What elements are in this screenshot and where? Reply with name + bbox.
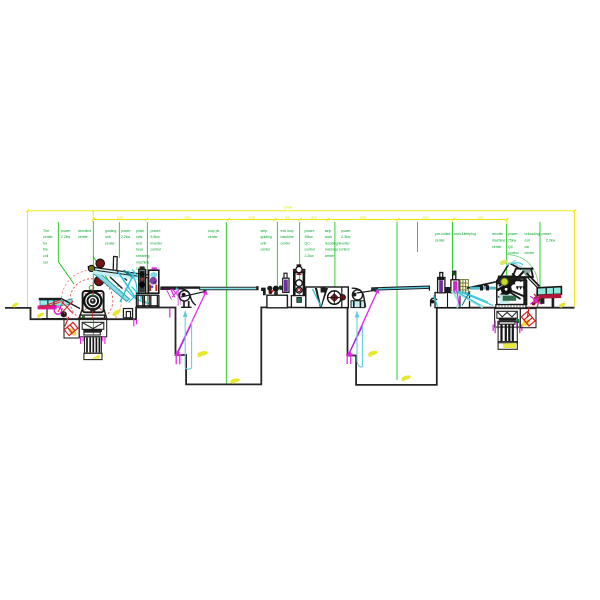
svg-text:loop pit: loop pit (208, 229, 219, 233)
svg-text:car: car (525, 245, 531, 249)
svg-text:recoiling/leveller: recoiling/leveller (325, 241, 351, 245)
svg-text:machine: machine (492, 239, 505, 243)
svg-text:control: control (508, 251, 519, 255)
svg-text:shearing: shearing (136, 254, 149, 258)
svg-text:power:: power: (151, 229, 162, 233)
svg-text:2.2kw: 2.2kw (61, 235, 71, 239)
svg-text:center: center (325, 254, 336, 258)
svg-text:control: control (305, 248, 316, 252)
svg-text:center: center (281, 241, 292, 245)
svg-text:control: control (151, 248, 162, 252)
svg-text:unloading: unloading (525, 232, 540, 236)
svg-text:center: center (525, 251, 536, 255)
svg-text:guiding: guiding (105, 229, 116, 233)
svg-text:1600: 1600 (477, 215, 484, 219)
svg-text:800: 800 (311, 215, 316, 219)
svg-text:2800: 2800 (360, 215, 367, 219)
svg-text:and: and (136, 241, 142, 245)
svg-text:machine: machine (136, 260, 149, 264)
svg-text:power:: power: (508, 232, 519, 236)
svg-text:exit loop: exit loop (281, 229, 294, 233)
svg-text:2.2kw: 2.2kw (121, 235, 131, 239)
svg-text:unit: unit (105, 235, 111, 239)
svg-text:center: center (435, 239, 446, 243)
svg-text:center: center (43, 235, 54, 239)
svg-text:55kw: 55kw (305, 235, 314, 239)
svg-text:pre-coiled: pre-coiled (435, 232, 450, 236)
svg-text:hear: hear (136, 248, 144, 252)
svg-text:75kw: 75kw (508, 239, 517, 243)
svg-text:QC: QC (508, 245, 514, 249)
svg-text:2000: 2000 (422, 215, 429, 219)
svg-text:3600: 3600 (184, 215, 191, 219)
svg-text:unit: unit (261, 241, 267, 245)
svg-text:2100: 2100 (248, 215, 255, 219)
svg-text:center: center (261, 248, 272, 252)
svg-text:pinch: pinch (136, 229, 144, 233)
svg-text:recoiler: recoiler (492, 232, 504, 236)
svg-text:inverter: inverter (151, 241, 164, 245)
svg-text:machine control: machine control (325, 248, 350, 252)
svg-text:car: car (43, 260, 49, 264)
svg-text:5.5kw: 5.5kw (151, 235, 161, 239)
svg-text:rolls: rolls (136, 235, 143, 239)
svg-text:power:: power: (542, 232, 553, 236)
svg-text:center: center (492, 245, 503, 249)
svg-text:QC: QC (305, 241, 311, 245)
svg-text:power:: power: (305, 229, 316, 233)
svg-text:The: The (43, 229, 49, 233)
svg-text:2-3kw: 2-3kw (341, 235, 351, 239)
svg-text:the: the (43, 248, 48, 252)
svg-text:center: center (78, 235, 89, 239)
svg-text:work&keeping: work&keeping (454, 232, 476, 236)
svg-text:2.2kw: 2.2kw (305, 254, 315, 258)
svg-text:guiding: guiding (261, 235, 272, 239)
svg-text:power:: power: (61, 229, 72, 233)
svg-text:machine: machine (281, 235, 294, 239)
svg-text:strip: strip (261, 229, 268, 233)
svg-text:center: center (105, 241, 116, 245)
svg-text:2500: 2500 (117, 215, 124, 219)
svg-text:decoiled: decoiled (78, 229, 91, 233)
svg-text:900: 900 (285, 215, 290, 219)
svg-text:power:: power: (121, 229, 132, 233)
svg-text:work: work (325, 235, 333, 239)
svg-text:power:: power: (341, 229, 352, 233)
svg-text:coil: coil (525, 239, 530, 243)
svg-text:coil: coil (43, 254, 48, 258)
svg-text:2.2kw: 2.2kw (546, 239, 556, 243)
svg-text:strip: strip (325, 229, 332, 233)
svg-text:center: center (208, 235, 219, 239)
svg-text:13400: 13400 (284, 206, 293, 210)
